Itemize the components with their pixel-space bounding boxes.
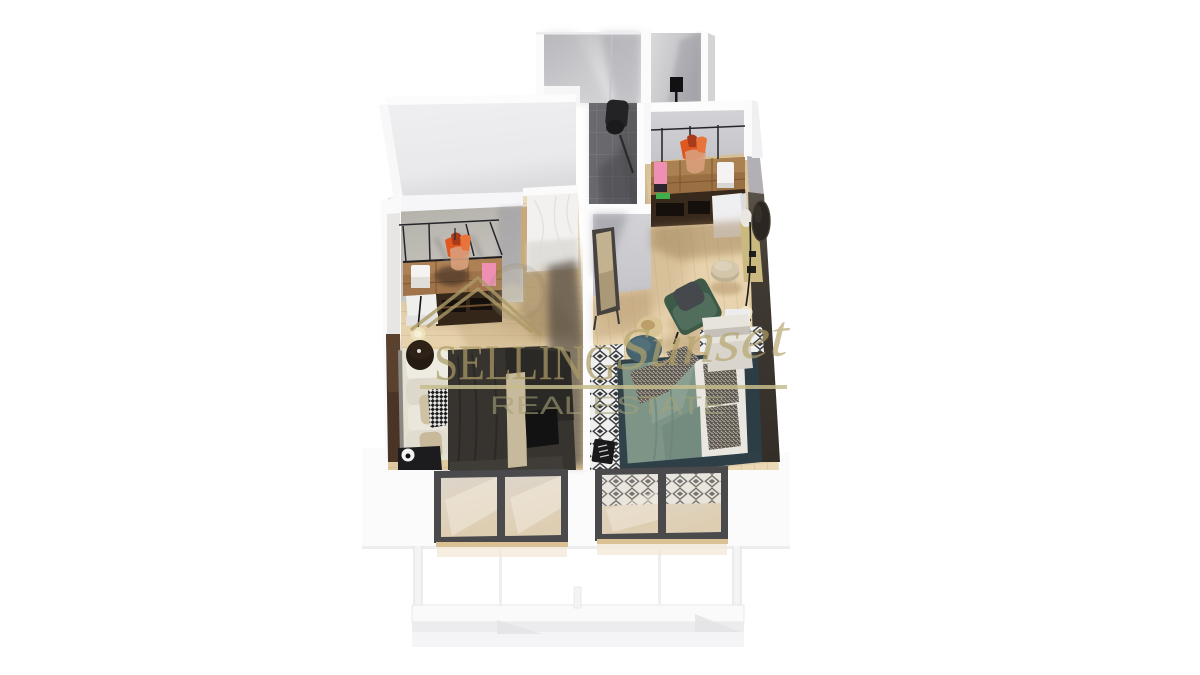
svg-text:SELLING: SELLING xyxy=(434,334,616,390)
svg-text:REAL ESTATE: REAL ESTATE xyxy=(490,392,726,420)
